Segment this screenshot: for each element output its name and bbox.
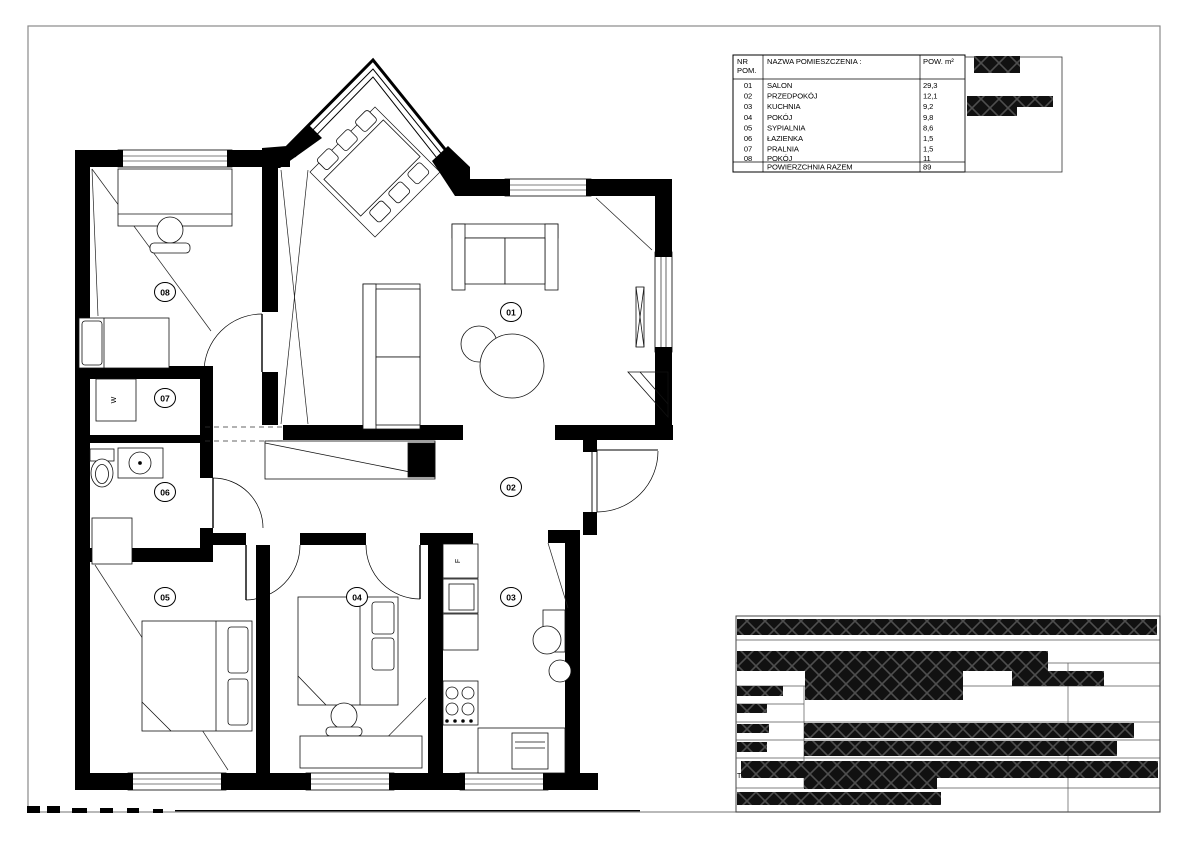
redacted-bar [967, 96, 1053, 107]
table-row: 01 SALON 29,3 [744, 81, 938, 90]
room-label-05: 05 [155, 588, 176, 607]
svg-text:05: 05 [160, 593, 170, 603]
room-nr: 05 [744, 123, 752, 132]
table-row: 02 PRZEDPOKÓJ 12,1 [744, 92, 938, 101]
redacted-bar [974, 56, 1020, 73]
sink-icon [118, 448, 163, 478]
entry-door [592, 450, 658, 512]
room-name: KUCHNIA [767, 102, 802, 111]
room-area: 29,3 [923, 81, 937, 90]
svg-text:03: 03 [506, 593, 516, 603]
room-area: 9,2 [923, 102, 933, 111]
room-name: SALON [767, 81, 792, 90]
chair [326, 703, 362, 736]
redacted-bars [737, 619, 1158, 805]
table-rows: 01 SALON 29,3 02 PRZEDPOKÓJ 12,1 03 KUCH… [744, 81, 938, 163]
desk [300, 736, 422, 768]
room-area: 9,8 [923, 113, 933, 122]
svg-text:07: 07 [160, 394, 170, 404]
rooms-table: NR POM. NAZWA POMIESZCZENIA : POW. m² 01… [733, 55, 1062, 172]
drawing-sheet: W F 01 02 03 04 05 06 07 08 [0, 0, 1190, 841]
redacted-bar [737, 792, 941, 805]
redacted-bar [804, 778, 937, 789]
counter [478, 728, 565, 773]
oven [443, 579, 478, 613]
sofa-vertical [363, 284, 420, 429]
room-label-04: 04 [347, 588, 368, 607]
redacted-bar [741, 761, 1158, 778]
table-footer-value: 89 [923, 163, 931, 172]
redacted-bar [737, 651, 1048, 671]
room-nr: 03 [744, 102, 752, 111]
redacted-bar [967, 107, 1017, 116]
redacted-bar [805, 671, 963, 700]
table-row: 04 POKÓJ 9,8 [744, 113, 933, 122]
redacted-bar [1012, 671, 1104, 686]
room-nr: 02 [744, 92, 752, 101]
room-label-08: 08 [155, 283, 176, 302]
wardrobe [265, 441, 435, 479]
room-name: ŁAZIENKA [767, 134, 804, 143]
room-label-01: 01 [501, 303, 522, 322]
sofa [452, 224, 558, 290]
room-label-07: 07 [155, 389, 176, 408]
room-nr: 06 [744, 134, 752, 143]
door-room-04 [366, 545, 420, 599]
room-nr: 07 [744, 145, 752, 154]
window [460, 773, 548, 790]
room-area: 1,5 [923, 145, 933, 154]
redacted-bar [804, 723, 1134, 738]
svg-text:01: 01 [506, 308, 516, 318]
room-nr: 01 [744, 81, 752, 90]
room-area: 1,5 [923, 134, 933, 143]
room-name: PRZEDPOKÓJ [767, 92, 818, 101]
room-name: PRALNIA [767, 145, 800, 154]
room-area: 12,1 [923, 92, 937, 101]
bed-single [79, 318, 169, 368]
table-header-name: NAZWA POMIESZCZENIA : [767, 57, 862, 66]
floor-plan-drawing: W F 01 02 03 04 05 06 07 08 [0, 0, 1190, 841]
room-label-02: 02 [501, 478, 522, 497]
door-room-08 [204, 314, 262, 372]
table-header-area: POW. m² [923, 57, 954, 66]
svg-text:08: 08 [160, 288, 170, 298]
room-label-06: 06 [155, 483, 176, 502]
table-header-nr-1: NR [737, 57, 748, 66]
table-header-nr-2: POM. [737, 66, 756, 75]
room-name: SYPIALNIA [767, 123, 806, 132]
table-footer-label: POWIERZCHNIA RAZEM [767, 163, 853, 172]
window [505, 179, 591, 196]
svg-text:06: 06 [160, 488, 170, 498]
room-label-03: 03 [501, 588, 522, 607]
svg-text:02: 02 [506, 483, 516, 493]
dining-table [310, 106, 432, 228]
redacted-bar [804, 741, 1117, 756]
room-name: POKÓJ [767, 113, 793, 122]
window [118, 150, 232, 167]
bed-double [142, 621, 252, 731]
stove-icon [443, 681, 478, 725]
redacted-bar [737, 619, 1157, 635]
table-row: 05 SYPIALNIA 8,6 [744, 123, 933, 132]
door-room-05 [246, 545, 300, 600]
bed [298, 597, 398, 705]
window [306, 773, 394, 790]
floor-plan: W F 01 02 03 04 05 06 07 08 [75, 60, 673, 790]
shower [92, 518, 132, 564]
window [655, 252, 672, 352]
redacted-bar [737, 704, 767, 713]
toilet-icon [90, 449, 114, 487]
table-row: 07 PRALNIA 1,5 [744, 145, 933, 154]
redacted-bar [737, 742, 767, 752]
fridge-label: F [455, 559, 462, 563]
room-nr: 08 [744, 154, 752, 163]
desk [118, 169, 232, 226]
table-row: 03 KUCHNIA 9,2 [744, 102, 933, 111]
coffee-tables [461, 326, 544, 398]
tv [636, 287, 644, 347]
svg-text:04: 04 [352, 593, 362, 603]
room-nr: 04 [744, 113, 752, 122]
washer-label: W [111, 396, 118, 403]
cabinet [443, 614, 478, 650]
window [128, 773, 226, 790]
dashed-wardrobe [205, 427, 283, 441]
redacted-bar [737, 724, 769, 733]
table-row: 06 ŁAZIENKA 1,5 [744, 134, 933, 143]
title-block: T [736, 616, 1160, 812]
room-area: 8,6 [923, 123, 933, 132]
kitchen-sink [533, 610, 571, 682]
door-bathroom [213, 478, 263, 528]
redacted-bar [737, 686, 783, 696]
